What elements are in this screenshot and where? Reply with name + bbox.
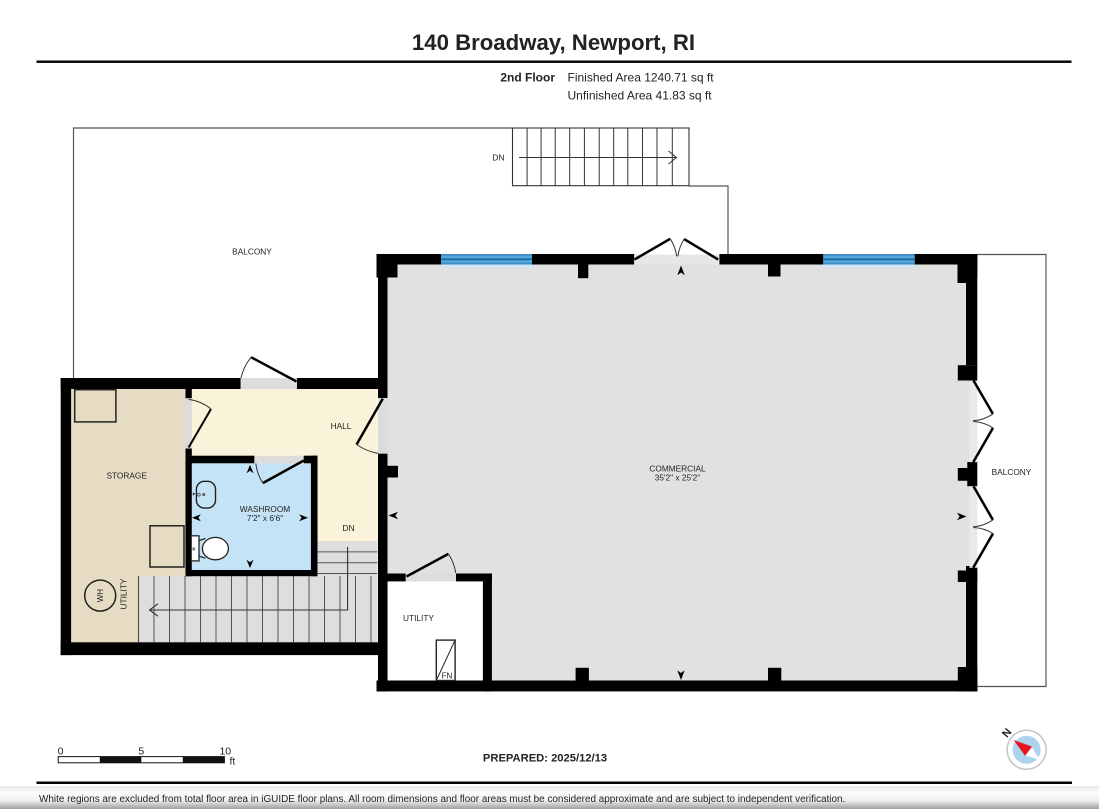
svg-text:ft: ft: [230, 755, 236, 767]
svg-text:HALL: HALL: [331, 421, 352, 431]
svg-text:DN: DN: [342, 523, 354, 533]
svg-text:BALCONY: BALCONY: [992, 467, 1032, 477]
svg-text:UTILITY: UTILITY: [119, 578, 129, 609]
svg-text:Finished Area 1240.71 sq ft: Finished Area 1240.71 sq ft: [568, 71, 715, 85]
svg-text:0: 0: [58, 746, 64, 758]
svg-text:PREPARED: 2025/12/13: PREPARED: 2025/12/13: [483, 753, 607, 765]
svg-text:5: 5: [138, 746, 144, 758]
svg-text:7'2" x 6'6": 7'2" x 6'6": [247, 513, 283, 523]
svg-text:140 Broadway, Newport, RI: 140 Broadway, Newport, RI: [412, 30, 695, 55]
svg-text:STORAGE: STORAGE: [106, 471, 147, 481]
svg-text:DN: DN: [492, 153, 504, 163]
svg-text:UTILITY: UTILITY: [403, 613, 434, 623]
svg-text:FN: FN: [442, 672, 453, 681]
svg-text:35'2" x 25'2": 35'2" x 25'2": [655, 473, 701, 483]
svg-text:BALCONY: BALCONY: [232, 247, 272, 257]
svg-text:White regions are excluded fro: White regions are excluded from total fl…: [39, 794, 845, 805]
svg-text:WH: WH: [96, 589, 105, 603]
svg-text:2nd Floor: 2nd Floor: [500, 71, 555, 85]
svg-text:Unfinished Area 41.83 sq ft: Unfinished Area 41.83 sq ft: [568, 89, 713, 103]
